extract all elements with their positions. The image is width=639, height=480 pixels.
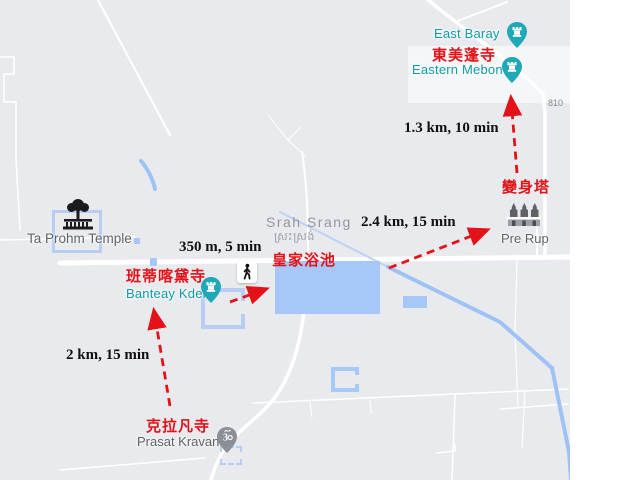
distance-banteay-srahsrang: 350 m, 5 min bbox=[179, 239, 262, 256]
route-arrow-prerup-to-mebon bbox=[511, 98, 517, 173]
map-area[interactable]: Srah Srang ស្រះស្រង់ Ta Prohm Temple Pre… bbox=[0, 0, 570, 480]
eastern-mebon-zh-label: 東美蓬寺 bbox=[432, 44, 496, 65]
srah-srang-zh-label: 皇家浴池 bbox=[272, 249, 336, 270]
distance-prerup-mebon: 1.3 km, 10 min bbox=[404, 120, 499, 137]
route-arrow-banteay-to-srahsrang bbox=[230, 289, 266, 302]
prasat-kravan-zh-label: 克拉凡寺 bbox=[146, 415, 210, 436]
route-arrow-kravan-to-banteay bbox=[154, 311, 170, 406]
route-arrows bbox=[0, 0, 570, 480]
route-arrow-srahsrang-to-prerup bbox=[389, 230, 487, 268]
right-margin bbox=[570, 0, 639, 480]
screenshot-canvas: Srah Srang ស្រះស្រង់ Ta Prohm Temple Pre… bbox=[0, 0, 639, 480]
distance-kravan-banteay: 2 km, 15 min bbox=[66, 347, 149, 364]
pre-rup-zh-label: 變身塔 bbox=[502, 176, 550, 197]
distance-srahsrang-prerup: 2.4 km, 15 min bbox=[361, 214, 456, 231]
banteay-kdei-zh-label: 班蒂喀黛寺 bbox=[126, 265, 206, 286]
